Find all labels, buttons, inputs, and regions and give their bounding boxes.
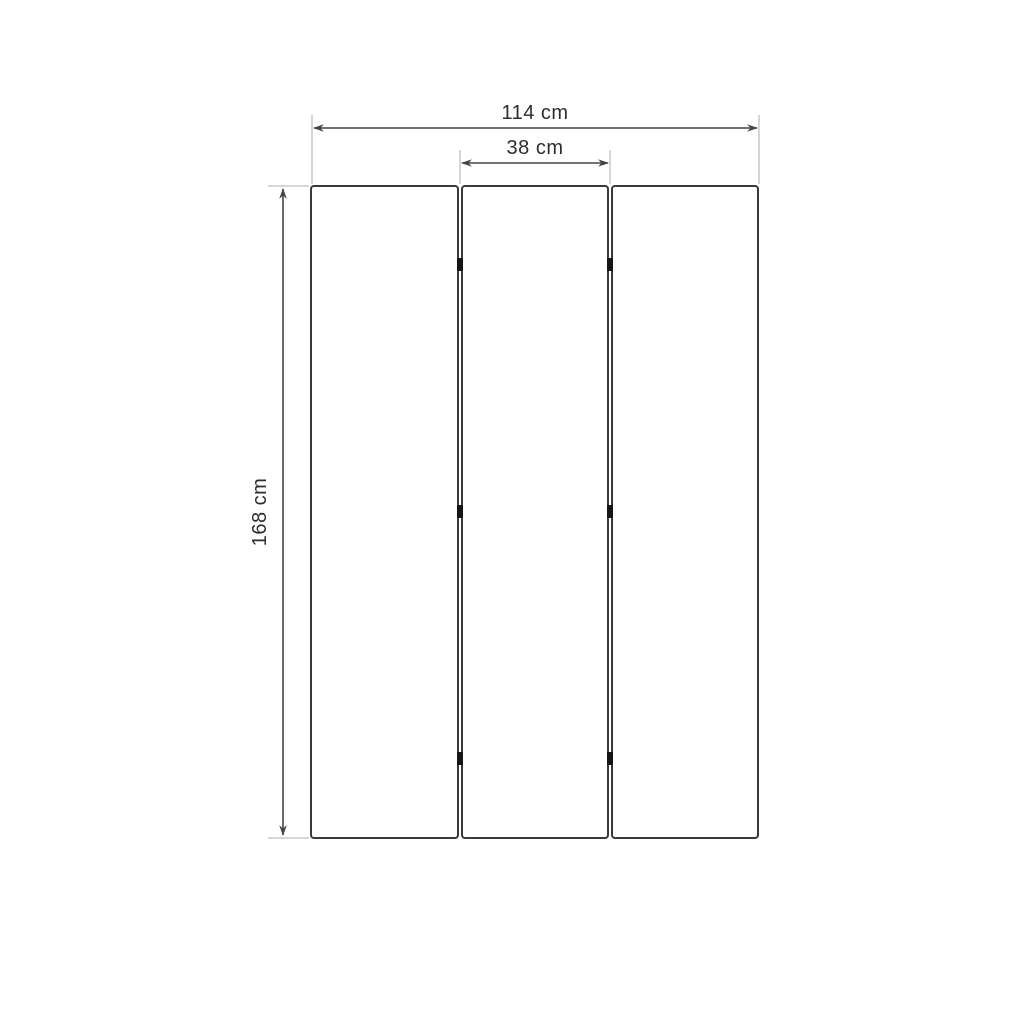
dimension-label-total-width: 114 cm <box>501 102 568 124</box>
dimension-label-panel-width: 38 cm <box>507 137 564 159</box>
hinge-right-top <box>607 258 613 271</box>
panel-left <box>311 186 458 838</box>
hinge-right-bottom <box>607 752 613 765</box>
panel-right <box>612 186 758 838</box>
dimension-label-height: 168 cm <box>249 478 271 547</box>
diagram-svg: 114 cm 38 cm 168 cm <box>0 0 1024 1024</box>
hinge-right-middle <box>607 505 613 518</box>
hinge-left-top <box>457 258 463 271</box>
screen-panels <box>311 186 758 838</box>
folding-screen-dimension-drawing: 114 cm 38 cm 168 cm <box>0 0 1024 1024</box>
panel-middle <box>462 186 608 838</box>
hinge-left-middle <box>457 505 463 518</box>
dimension-height: 168 cm <box>249 186 309 838</box>
dimension-panel-width: 38 cm <box>460 137 610 184</box>
hinge-left-bottom <box>457 752 463 765</box>
